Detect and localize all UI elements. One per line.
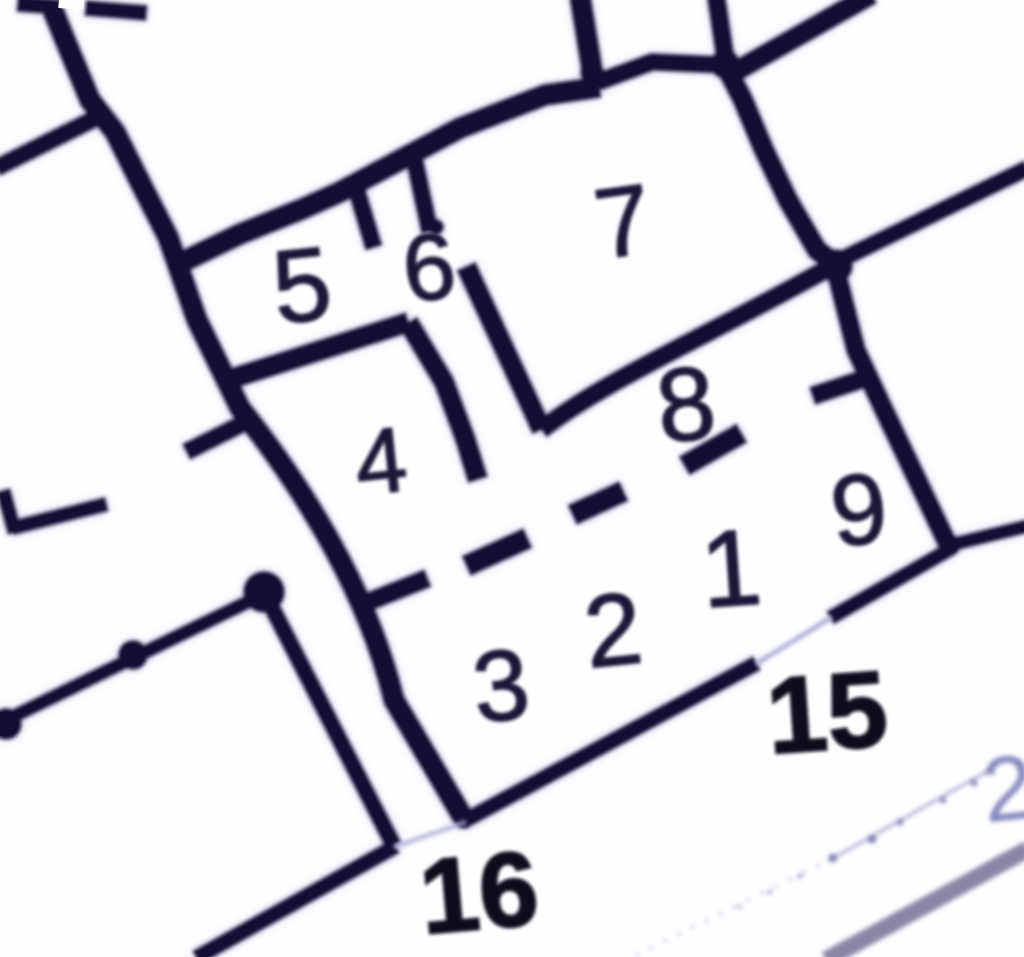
svg-text:1: 1 [697,506,765,631]
svg-text:3: 3 [467,627,534,744]
svg-text:5: 5 [267,225,337,346]
svg-text:8: 8 [651,344,721,465]
svg-text:16: 16 [415,829,543,957]
svg-text:6: 6 [398,212,461,322]
svg-text:2: 2 [579,570,647,689]
svg-text:15: 15 [763,647,891,776]
svg-text:4: 4 [350,409,412,516]
svg-text:9: 9 [825,451,892,568]
